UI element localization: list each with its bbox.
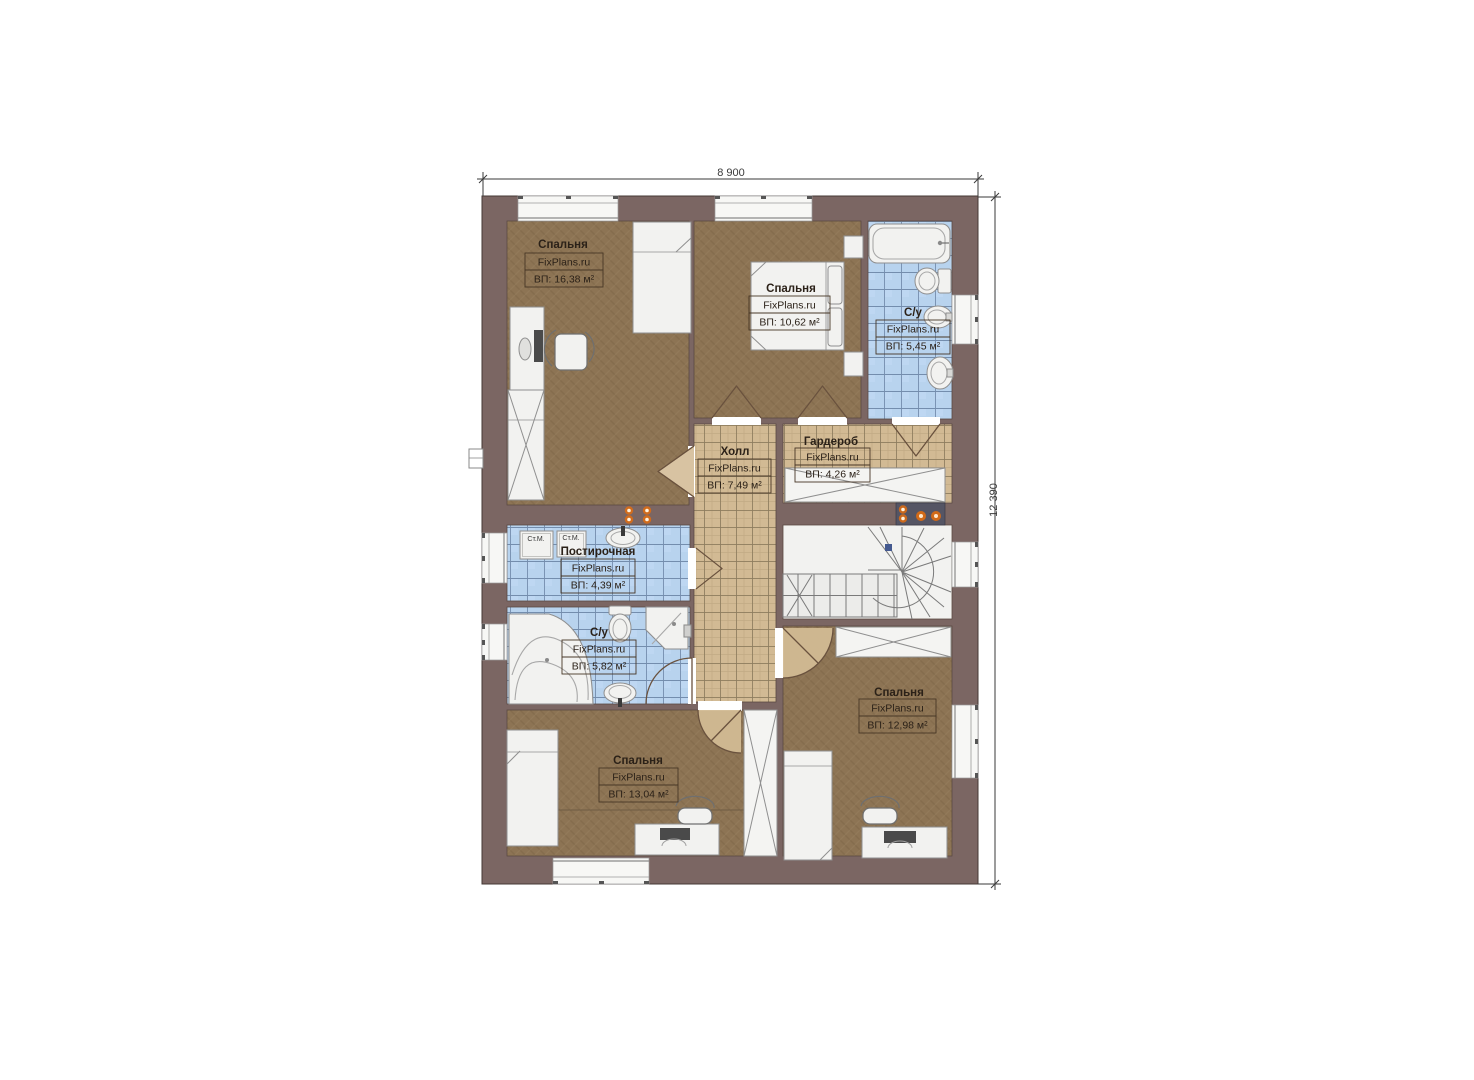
svg-text:Ст.М.: Ст.М. [562, 535, 579, 542]
svg-text:ВП: 5,82 м²: ВП: 5,82 м² [572, 661, 627, 673]
svg-text:FixPlans.ru: FixPlans.ru [806, 452, 859, 464]
svg-text:Постирочная: Постирочная [561, 546, 636, 558]
svg-text:Спальня: Спальня [874, 687, 924, 699]
svg-text:Холл: Холл [721, 446, 750, 458]
svg-text:FixPlans.ru: FixPlans.ru [538, 257, 591, 269]
svg-text:FixPlans.ru: FixPlans.ru [887, 324, 940, 336]
svg-text:ВП: 4,39 м²: ВП: 4,39 м² [571, 580, 626, 592]
svg-text:ВП: 16,38 м²: ВП: 16,38 м² [534, 274, 595, 286]
svg-text:FixPlans.ru: FixPlans.ru [708, 463, 761, 475]
svg-text:Спальня: Спальня [538, 239, 588, 251]
svg-text:FixPlans.ru: FixPlans.ru [763, 300, 816, 312]
svg-text:ВП: 13,04 м²: ВП: 13,04 м² [608, 789, 669, 801]
svg-text:С/у: С/у [904, 307, 923, 319]
svg-text:8 900: 8 900 [717, 167, 745, 179]
svg-text:Ст.М.: Ст.М. [527, 536, 544, 543]
svg-text:ВП: 4,26 м²: ВП: 4,26 м² [805, 469, 860, 481]
svg-text:12 390: 12 390 [988, 483, 1000, 517]
svg-text:Гардероб: Гардероб [804, 436, 858, 448]
svg-text:FixPlans.ru: FixPlans.ru [573, 644, 626, 656]
svg-text:ВП: 7,49 м²: ВП: 7,49 м² [707, 480, 762, 492]
svg-text:ВП: 12,98 м²: ВП: 12,98 м² [867, 720, 928, 732]
svg-text:FixPlans.ru: FixPlans.ru [871, 703, 924, 715]
svg-text:ВП: 5,45 м²: ВП: 5,45 м² [886, 341, 941, 353]
svg-text:С/у: С/у [590, 627, 609, 639]
svg-text:ВП: 10,62 м²: ВП: 10,62 м² [759, 317, 820, 329]
svg-text:Спальня: Спальня [766, 283, 816, 295]
svg-text:FixPlans.ru: FixPlans.ru [572, 563, 625, 575]
svg-text:FixPlans.ru: FixPlans.ru [612, 772, 665, 784]
svg-text:Спальня: Спальня [613, 755, 663, 767]
